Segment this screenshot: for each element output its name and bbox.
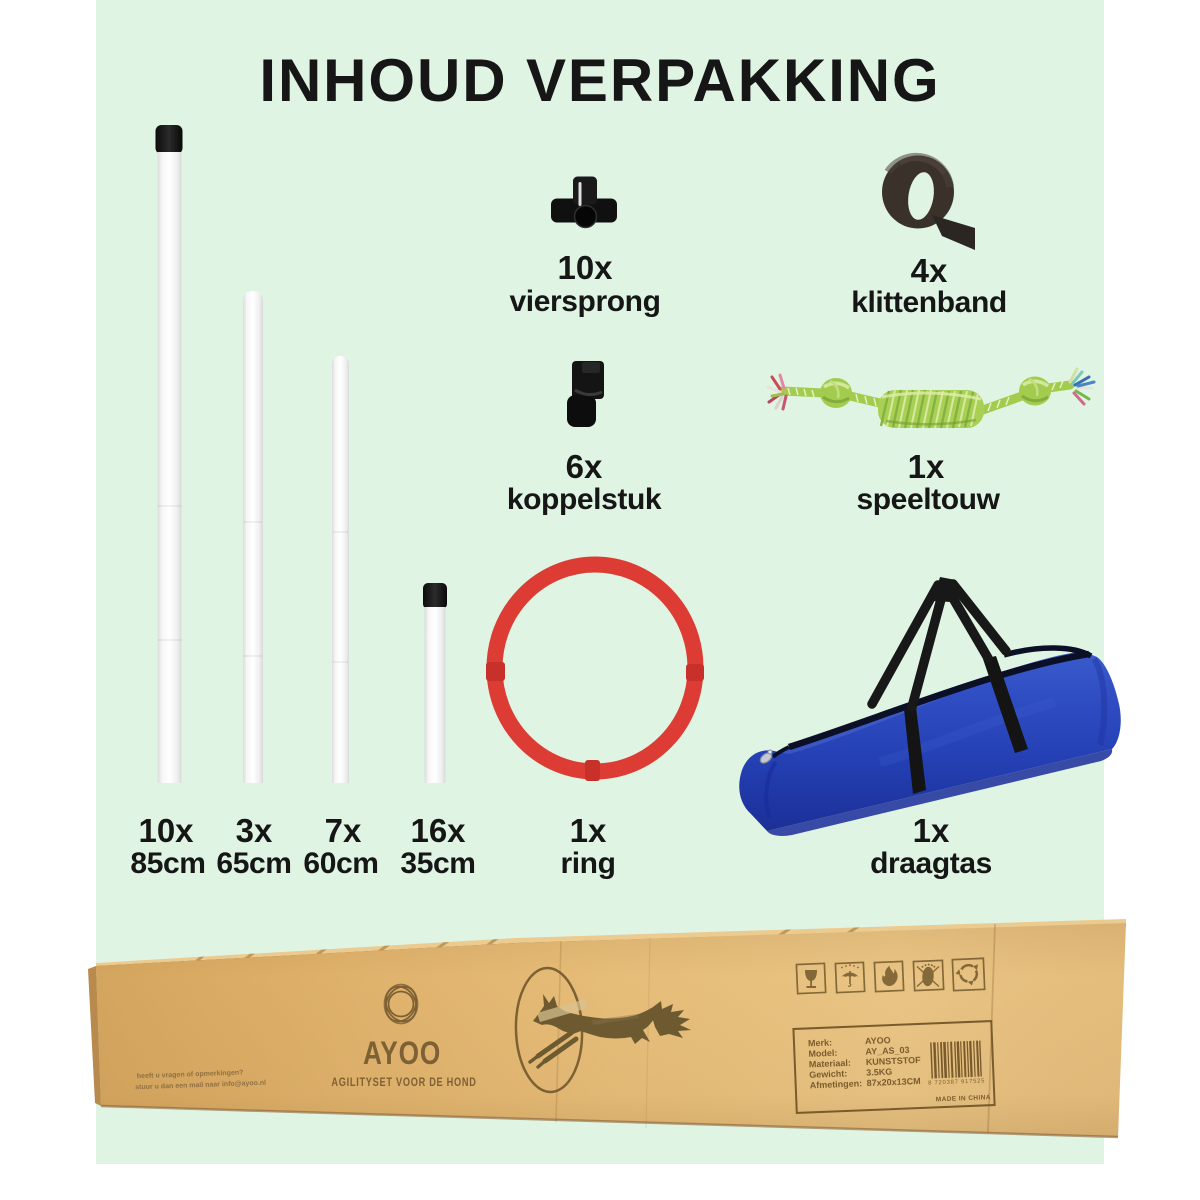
svg-text:AYOO: AYOO (363, 1037, 441, 1072)
svg-text:AGILITYSET VOOR DE HOND: AGILITYSET VOOR DE HOND (331, 1077, 476, 1089)
svg-text:1x: 1x (913, 812, 950, 849)
svg-text:65cm: 65cm (216, 847, 291, 880)
svg-text:INHOUD VERPAKKING: INHOUD VERPAKKING (259, 47, 940, 114)
svg-text:1x: 1x (570, 812, 607, 849)
svg-text:3.5KG: 3.5KG (866, 1067, 892, 1078)
svg-text:koppelstuk: koppelstuk (507, 483, 662, 516)
svg-text:1x: 1x (908, 448, 945, 485)
svg-text:draagtas: draagtas (870, 847, 992, 880)
svg-text:Afmetingen:: Afmetingen: (810, 1078, 863, 1090)
svg-text:AYOO: AYOO (865, 1035, 891, 1046)
svg-text:ring: ring (560, 847, 615, 880)
svg-text:speeltouw: speeltouw (856, 483, 1000, 516)
svg-text:16x: 16x (410, 812, 466, 849)
svg-text:10x: 10x (557, 249, 613, 286)
svg-text:4x: 4x (911, 252, 948, 289)
svg-text:6x: 6x (566, 448, 603, 485)
svg-text:7x: 7x (325, 812, 362, 849)
svg-text:klittenband: klittenband (851, 286, 1007, 319)
svg-text:viersprong: viersprong (509, 285, 660, 318)
svg-text:85cm: 85cm (130, 847, 205, 880)
svg-text:Model:: Model: (808, 1048, 837, 1059)
svg-text:10x: 10x (138, 812, 194, 849)
svg-text:60cm: 60cm (303, 847, 378, 880)
svg-text:Merk:: Merk: (808, 1037, 832, 1048)
svg-text:35cm: 35cm (400, 847, 475, 880)
svg-text:3x: 3x (236, 812, 273, 849)
